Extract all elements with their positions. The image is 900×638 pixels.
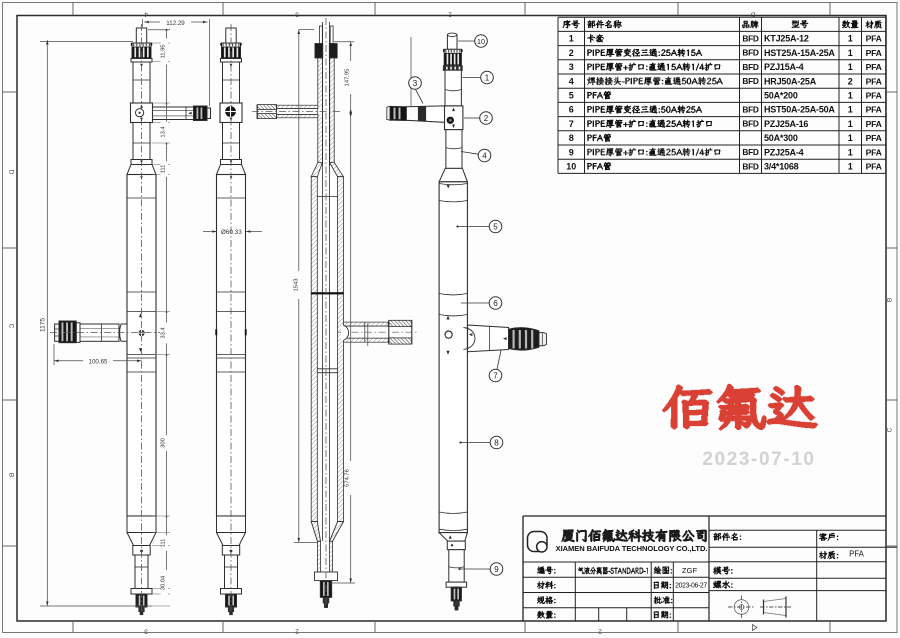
svg-text:7: 7: [569, 119, 574, 129]
svg-text:1: 1: [569, 34, 574, 44]
svg-text:8: 8: [494, 438, 499, 447]
svg-text:BFD: BFD: [742, 34, 758, 44]
svg-text:50A*300: 50A*300: [764, 133, 798, 143]
svg-text:9: 9: [494, 565, 499, 574]
svg-text:BFD: BFD: [742, 48, 758, 58]
svg-text:11.95: 11.95: [160, 44, 166, 58]
svg-text:HST25A-15A-25A: HST25A-15A-25A: [764, 48, 835, 58]
svg-text:9: 9: [569, 147, 574, 157]
svg-text:1: 1: [848, 133, 853, 143]
svg-text:C: C: [8, 324, 15, 329]
svg-text:PFA: PFA: [866, 119, 882, 129]
svg-text:33.4: 33.4: [160, 327, 166, 339]
svg-text:ZGF: ZGF: [682, 566, 698, 575]
svg-text:BFD: BFD: [742, 119, 758, 129]
svg-text:2: 2: [448, 11, 452, 18]
svg-text:PFA: PFA: [849, 550, 865, 559]
svg-text:1: 1: [848, 162, 853, 172]
svg-text:XIAMEN BAIFUDA TECHNOLOGY CO.,: XIAMEN BAIFUDA TECHNOLOGY CO.,LTD.: [556, 544, 708, 553]
svg-text:PFA: PFA: [866, 62, 882, 72]
svg-text:PFA: PFA: [866, 76, 882, 86]
svg-text:5: 5: [569, 91, 574, 101]
svg-text:D: D: [8, 170, 15, 175]
svg-text:B: B: [887, 298, 894, 302]
svg-text:BFD: BFD: [742, 62, 758, 72]
svg-text:1: 1: [485, 73, 490, 82]
svg-text:112.29: 112.29: [166, 20, 185, 27]
svg-text:2: 2: [295, 628, 299, 635]
svg-text:PZJ15A-4: PZJ15A-4: [764, 62, 804, 72]
svg-text:1: 1: [848, 48, 853, 58]
svg-text:PFA: PFA: [866, 105, 882, 115]
svg-text:1: 1: [848, 105, 853, 115]
svg-text:2: 2: [598, 628, 602, 635]
svg-text:111: 111: [160, 539, 166, 548]
svg-text:3/4*1068: 3/4*1068: [764, 162, 799, 172]
svg-text:1175: 1175: [40, 318, 47, 332]
svg-text:300: 300: [160, 438, 166, 448]
svg-text:3: 3: [413, 79, 418, 88]
svg-text:2023-06-27: 2023-06-27: [675, 583, 707, 590]
svg-text:5: 5: [493, 222, 498, 231]
svg-text:1: 1: [848, 62, 853, 72]
svg-text:PFA: PFA: [866, 48, 882, 58]
svg-text:1: 1: [848, 34, 853, 44]
svg-text:4: 4: [482, 151, 487, 160]
svg-text:1: 1: [848, 147, 853, 157]
svg-text:3: 3: [569, 62, 574, 72]
svg-text:4: 4: [144, 11, 148, 18]
svg-text:PFA: PFA: [866, 133, 882, 143]
svg-text:50A*200: 50A*200: [764, 91, 798, 101]
svg-text:3: 3: [295, 11, 299, 18]
svg-text:PZJ25A-4: PZJ25A-4: [764, 147, 804, 157]
svg-text:B: B: [8, 473, 15, 477]
svg-text:2: 2: [484, 114, 489, 123]
svg-text:PFA: PFA: [866, 147, 882, 157]
svg-text:574.76: 574.76: [344, 469, 350, 487]
svg-text:3: 3: [144, 628, 148, 635]
svg-text:D: D: [750, 11, 755, 18]
svg-text:6: 6: [569, 105, 574, 115]
svg-text:7: 7: [493, 371, 498, 380]
svg-text:BFD: BFD: [742, 161, 758, 171]
svg-text:2023-07-10: 2023-07-10: [702, 449, 815, 470]
svg-text:100.65: 100.65: [89, 358, 108, 365]
svg-text:4: 4: [569, 76, 574, 86]
svg-text:1543: 1543: [293, 279, 299, 292]
svg-text:2: 2: [569, 48, 574, 58]
svg-text:6: 6: [493, 299, 498, 308]
svg-text:KTJ25A-12: KTJ25A-12: [764, 34, 809, 44]
svg-text:HRJ50A-25A: HRJ50A-25A: [764, 76, 817, 86]
svg-text:PFA: PFA: [866, 162, 882, 172]
svg-text:2: 2: [848, 76, 853, 86]
svg-text:PFA: PFA: [866, 34, 882, 44]
svg-text:PFA: PFA: [866, 91, 882, 101]
svg-text:C: C: [887, 427, 894, 432]
svg-text:HST50A-25A-50A: HST50A-25A-50A: [764, 105, 835, 115]
svg-text:30.04: 30.04: [160, 575, 166, 590]
svg-text:10: 10: [566, 162, 576, 172]
svg-text:1: 1: [848, 91, 853, 101]
svg-text:147.95: 147.95: [344, 69, 350, 87]
svg-text:PZJ25A-16: PZJ25A-16: [764, 119, 808, 129]
svg-text:8: 8: [569, 133, 574, 143]
svg-text:13.4: 13.4: [160, 126, 166, 138]
svg-text:1: 1: [848, 119, 853, 129]
svg-text:111: 111: [160, 165, 166, 174]
svg-text:BFD: BFD: [742, 76, 758, 86]
svg-text:Ø60.33: Ø60.33: [221, 229, 242, 236]
svg-text:BFD: BFD: [742, 105, 758, 115]
svg-text:10: 10: [477, 37, 485, 46]
svg-text:BFD: BFD: [742, 147, 758, 157]
